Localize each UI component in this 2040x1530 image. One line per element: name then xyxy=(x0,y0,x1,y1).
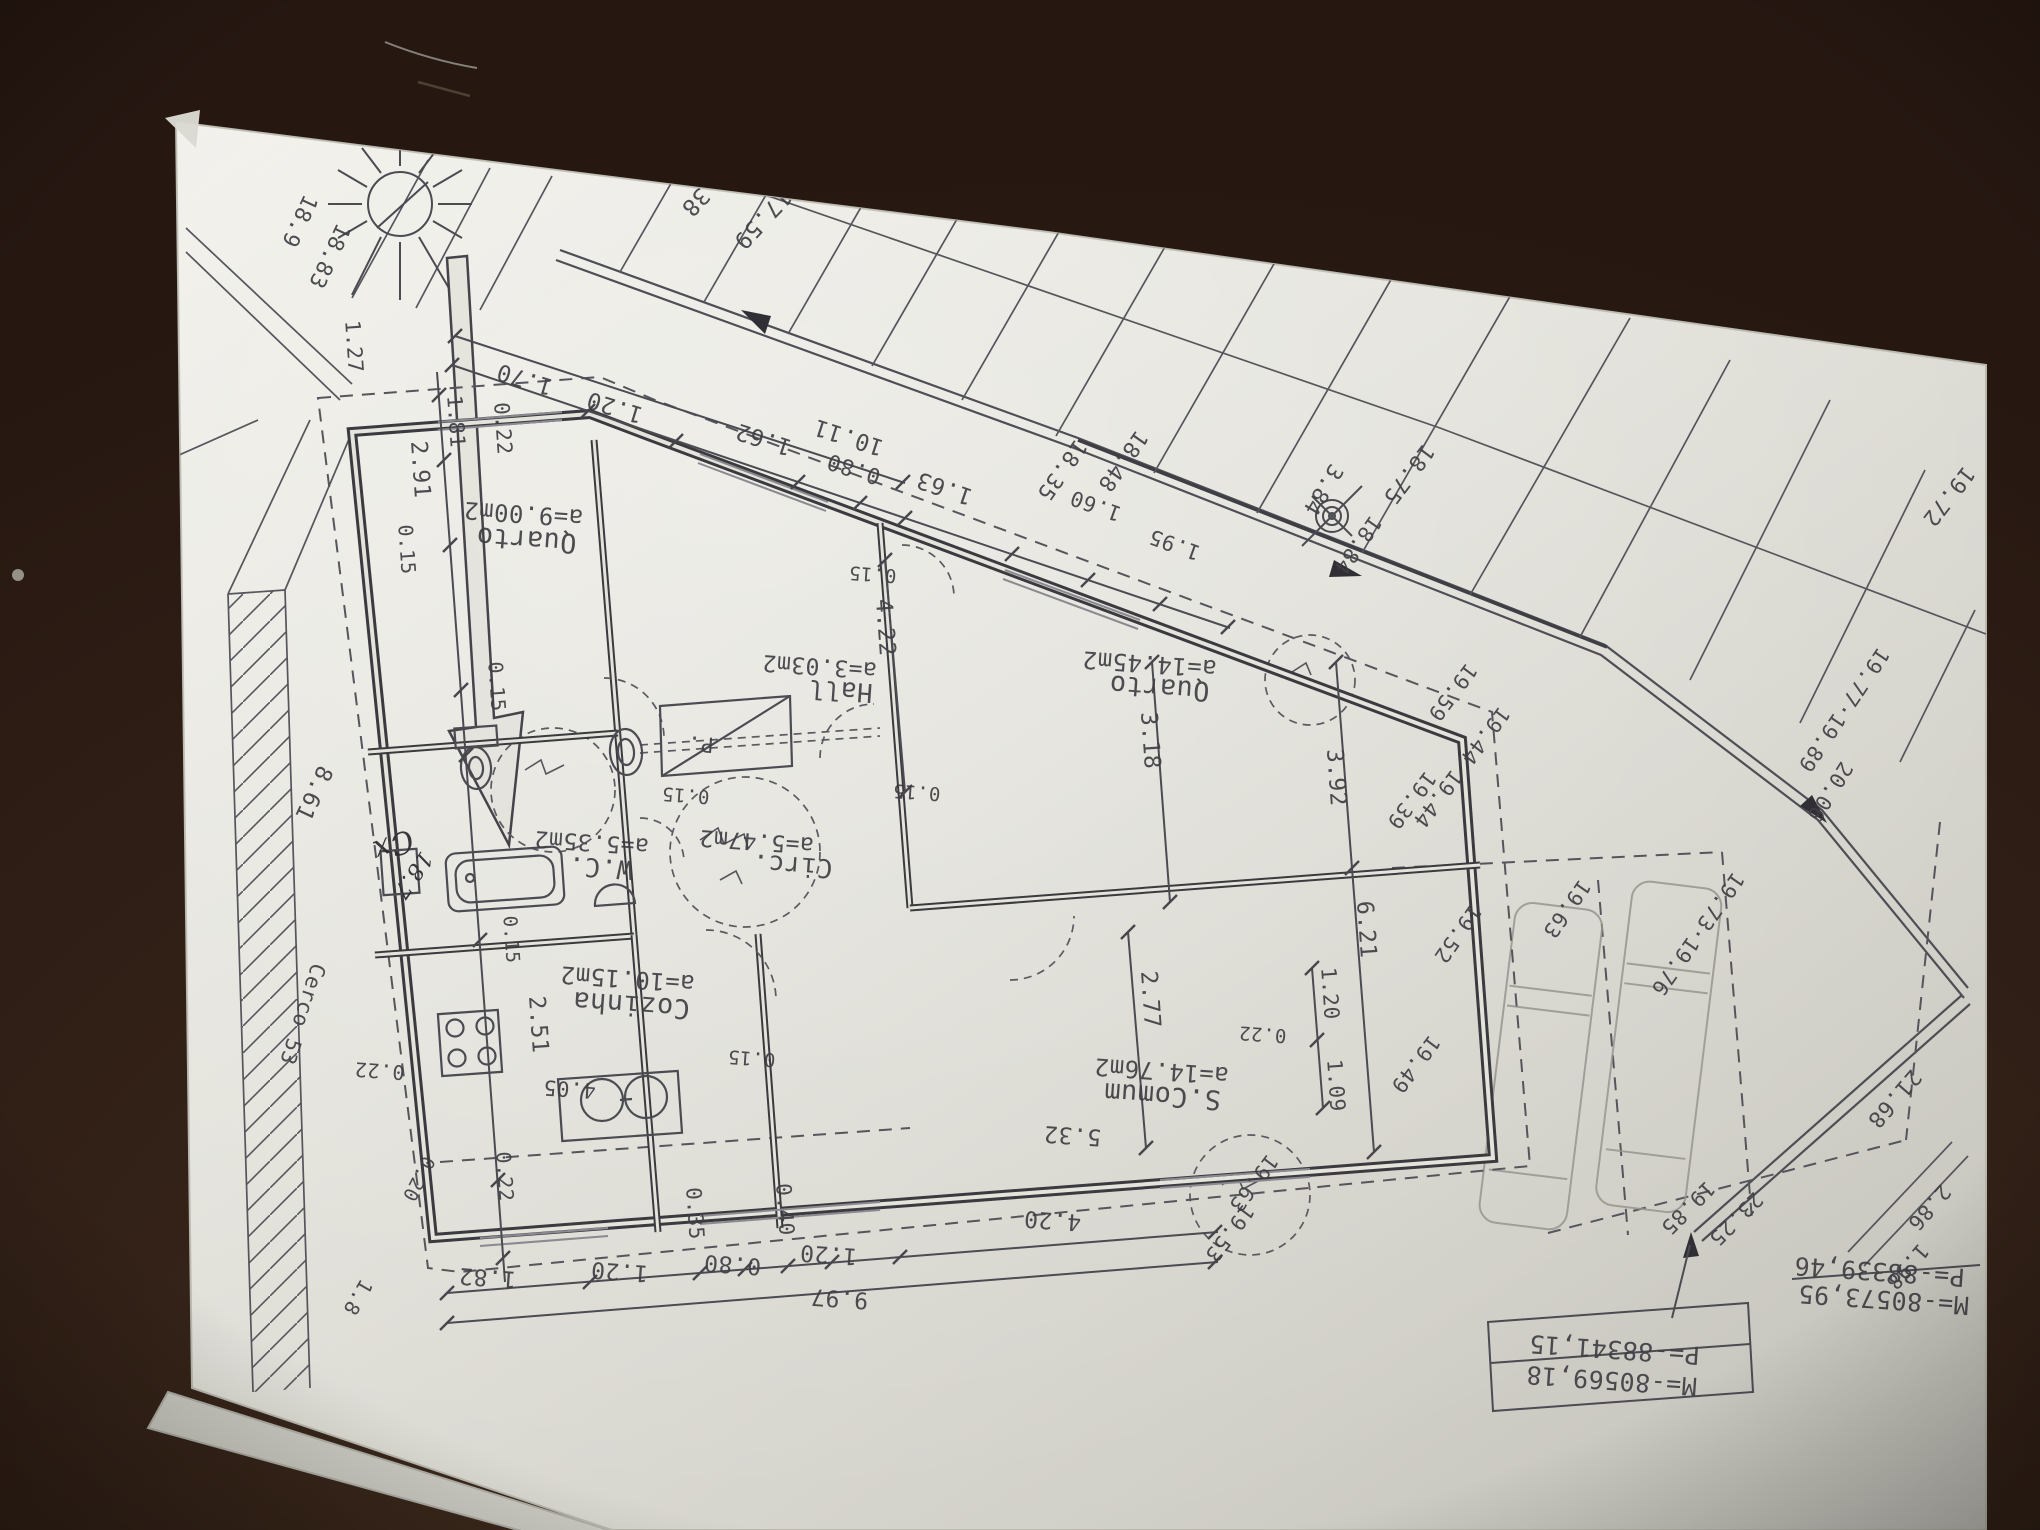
photo-of-floor-plan: a=9.00m2Quartoa=3.03m2Halla=14.45m2Quart… xyxy=(0,0,2040,1530)
scene: a=9.00m2Quartoa=3.03m2Halla=14.45m2Quart… xyxy=(0,0,2040,1530)
vignette xyxy=(0,0,2040,1530)
